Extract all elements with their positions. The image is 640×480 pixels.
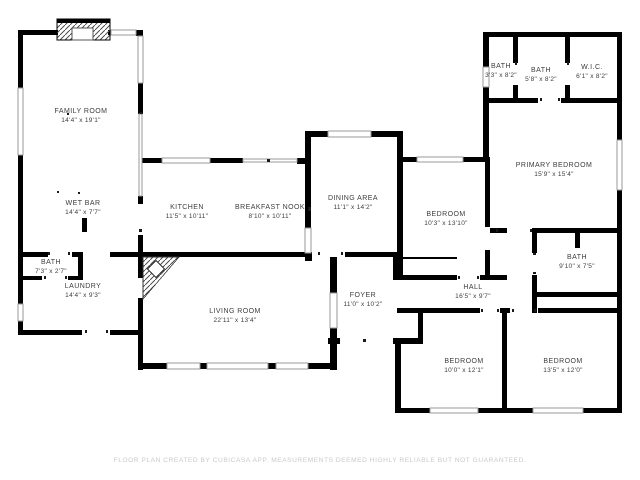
- window: [305, 228, 311, 253]
- window: [138, 36, 143, 83]
- window: [533, 408, 583, 413]
- window: [18, 88, 23, 155]
- fireplace-icon: [57, 19, 110, 40]
- sliding-door: [139, 114, 142, 196]
- windows-layer: [18, 30, 622, 413]
- window: [417, 157, 463, 162]
- footer-disclaimer: FLOOR PLAN CREATED BY CUBICASA APP. MEAS…: [0, 457, 640, 464]
- window: [111, 30, 136, 35]
- floor-plan-svg: [0, 0, 640, 480]
- window: [276, 363, 308, 369]
- floor-plan-canvas: FAMILY ROOM14'4" x 19'1"WET BAR14'4" x 7…: [0, 0, 640, 480]
- window: [18, 304, 23, 321]
- window: [430, 408, 478, 413]
- window: [207, 363, 268, 369]
- window: [328, 131, 371, 137]
- staircase-icon: [143, 257, 179, 299]
- window: [162, 158, 210, 163]
- walls-layer: [18, 30, 622, 413]
- window: [167, 363, 200, 369]
- open-door-leaf: [330, 293, 337, 328]
- window: [617, 140, 622, 190]
- window: [483, 67, 489, 87]
